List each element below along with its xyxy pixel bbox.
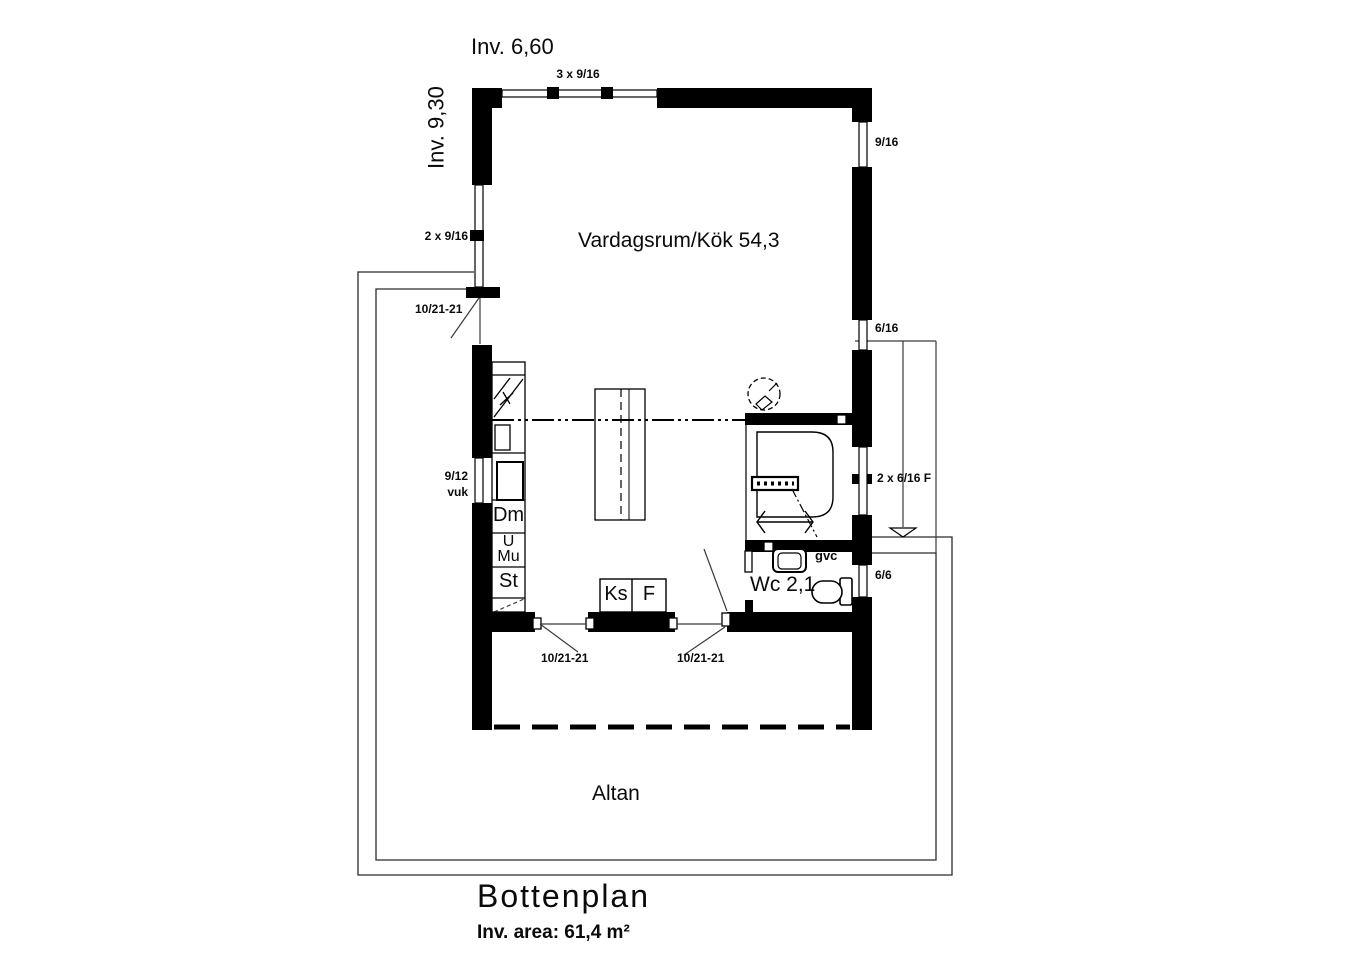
door-label-entry: 10/21-21 bbox=[415, 303, 462, 316]
dimension-arrow-icon bbox=[890, 528, 916, 537]
room-label-living-kitchen: Vardagsrum/Kök 54,3 bbox=[578, 230, 780, 252]
shower-symbol bbox=[757, 432, 833, 517]
toilet-symbol bbox=[812, 578, 852, 605]
appliance-label-tall-cabinet: St bbox=[492, 571, 525, 592]
window-label-right-upper: 9/16 bbox=[875, 136, 898, 149]
room-label-wc: Wc 2,1 bbox=[750, 574, 815, 596]
window-label-kitchen-type: vuk bbox=[432, 486, 468, 499]
sink-symbol bbox=[773, 549, 806, 572]
appliance-label-dishwasher: Dm bbox=[492, 505, 525, 526]
floor-plan-drawing: Inv. 6,60 Inv. 9,30 3 x 9/16 2 x 9/16 10… bbox=[0, 0, 1363, 960]
fixture-label-floor-heating: gvc bbox=[815, 549, 837, 563]
section-dashdot bbox=[792, 489, 817, 537]
room-label-terrace: Altan bbox=[592, 783, 640, 805]
floor-plan-linework bbox=[0, 0, 1363, 960]
appliance-label-freezer: F bbox=[632, 584, 666, 605]
window-label-left-double: 2 x 9/16 bbox=[418, 230, 468, 243]
window-label-wc-small: 6/6 bbox=[875, 569, 892, 582]
ceiling-fixture-icon bbox=[748, 378, 780, 410]
window-label-wc-double: 2 x 6/16 F bbox=[877, 472, 931, 485]
window-label-right-middle: 6/16 bbox=[875, 322, 898, 335]
walls bbox=[466, 88, 872, 730]
appliance-label-fridge: Ks bbox=[600, 584, 632, 605]
window-label-kitchen-size: 9/12 bbox=[432, 470, 468, 483]
plan-area-label: Inv. area: 61,4 m² bbox=[477, 923, 630, 943]
dim-label-inv-660: Inv. 6,60 bbox=[471, 35, 554, 58]
dim-label-inv-930: Inv. 9,30 bbox=[424, 80, 447, 176]
plan-title: Bottenplan bbox=[477, 880, 650, 914]
wc-room bbox=[746, 378, 833, 540]
door-label-terrace-left: 10/21-21 bbox=[541, 652, 588, 665]
appliance-label-microwave: Mu bbox=[492, 549, 525, 566]
door-label-terrace-right: 10/21-21 bbox=[677, 652, 724, 665]
window-label-top-triple: 3 x 9/16 bbox=[543, 68, 613, 81]
kitchen-island bbox=[595, 389, 645, 520]
